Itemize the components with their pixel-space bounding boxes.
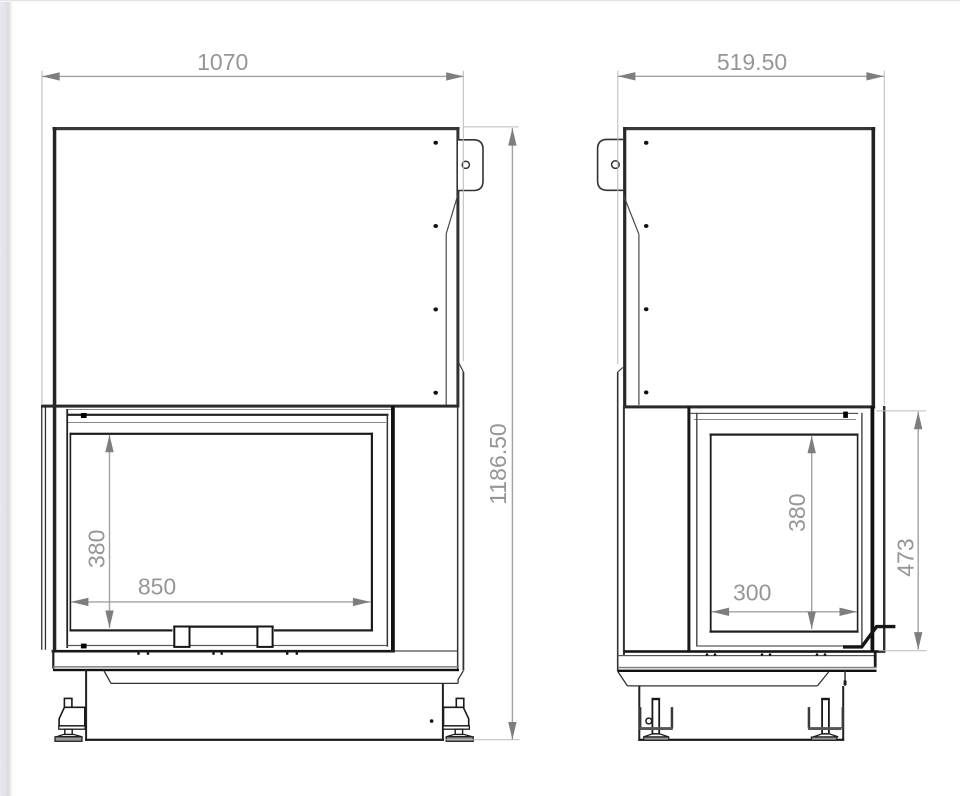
svg-text:300: 300 — [733, 579, 771, 605]
svg-text:473: 473 — [893, 538, 919, 576]
svg-text:380: 380 — [83, 530, 109, 568]
svg-text:1186.50: 1186.50 — [485, 423, 511, 504]
svg-text:519.50: 519.50 — [717, 49, 787, 75]
svg-text:380: 380 — [784, 494, 810, 532]
svg-text:850: 850 — [138, 574, 176, 600]
svg-text:1070: 1070 — [197, 49, 248, 75]
